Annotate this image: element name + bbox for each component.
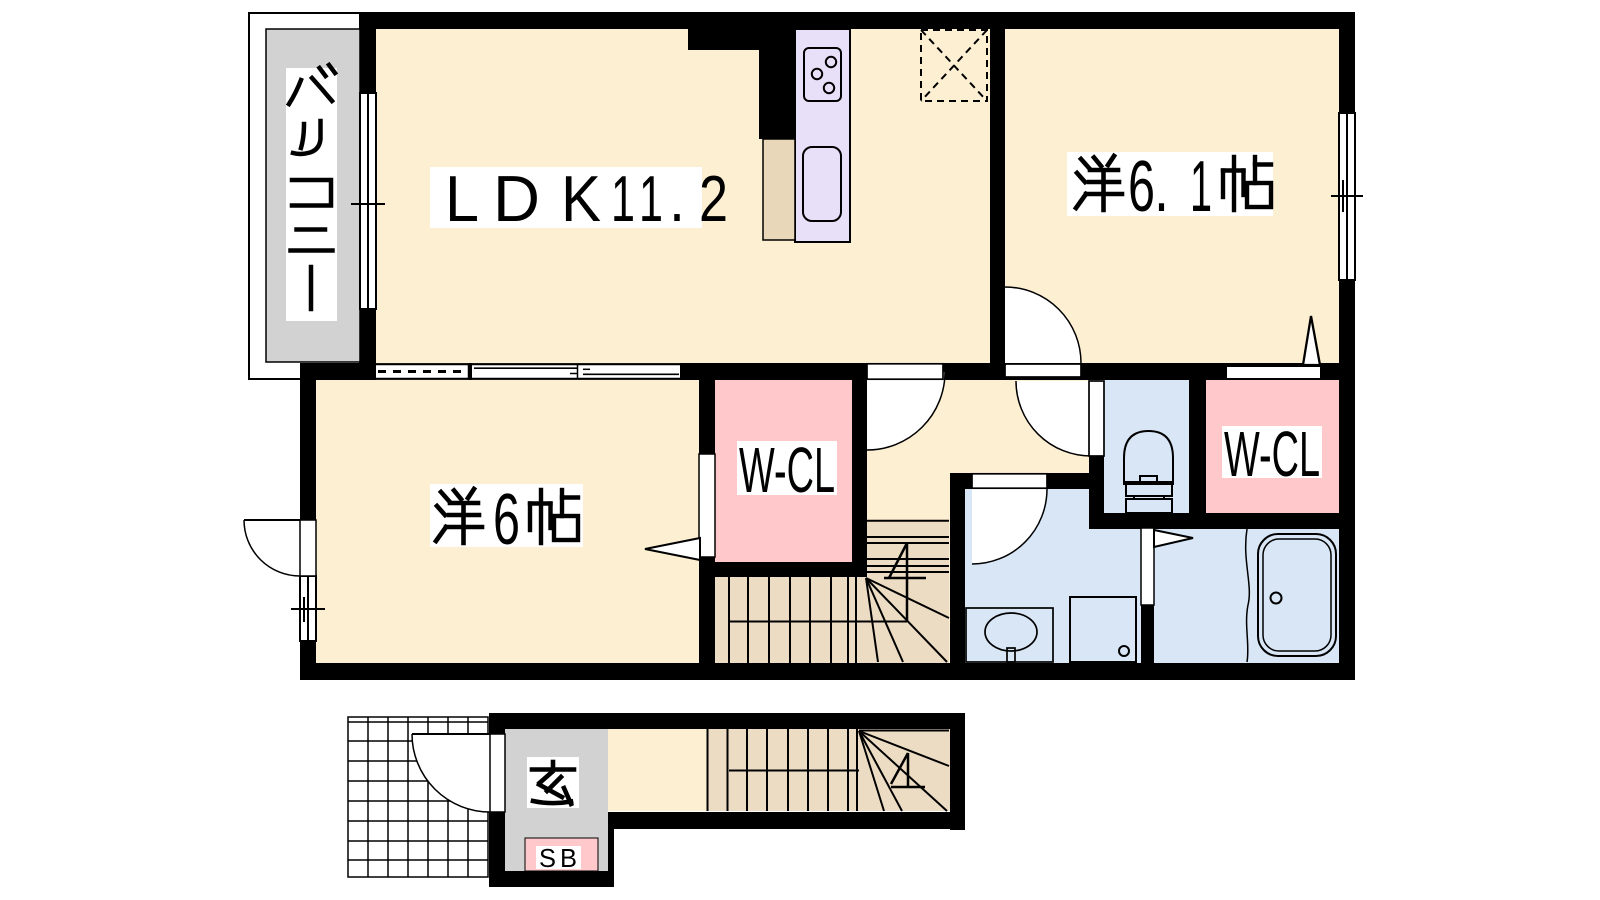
svg-text:S: S	[539, 843, 556, 873]
svg-text:6: 6	[493, 480, 520, 560]
svg-text:B: B	[560, 843, 577, 873]
svg-text:6: 6	[1128, 147, 1155, 227]
svg-text:W-CL: W-CL	[1224, 418, 1320, 490]
svg-text:W-CL: W-CL	[739, 434, 835, 506]
svg-text:K: K	[561, 162, 601, 235]
svg-text:1: 1	[611, 162, 635, 235]
svg-text:1: 1	[1190, 147, 1212, 227]
svg-text:D: D	[493, 162, 540, 235]
svg-text:2: 2	[699, 162, 728, 235]
svg-text:1: 1	[639, 162, 663, 235]
svg-text:L: L	[445, 162, 479, 235]
svg-text:.: .	[669, 162, 685, 235]
svg-text:.: .	[1154, 147, 1169, 227]
